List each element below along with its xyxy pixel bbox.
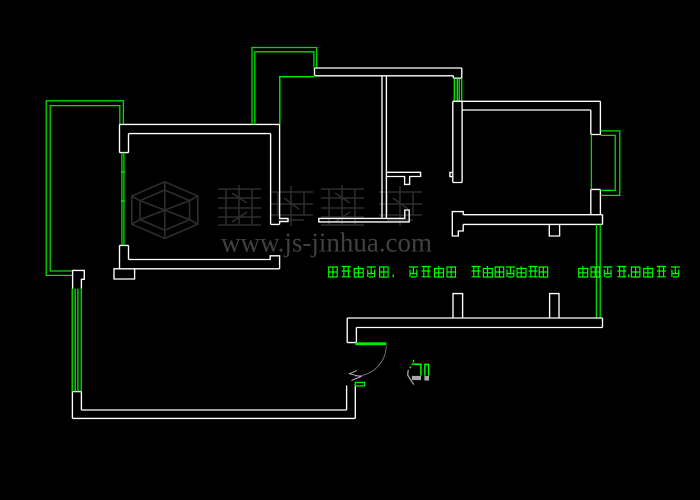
svg-text:www.js-jinhua.com: www.js-jinhua.com (221, 228, 432, 258)
